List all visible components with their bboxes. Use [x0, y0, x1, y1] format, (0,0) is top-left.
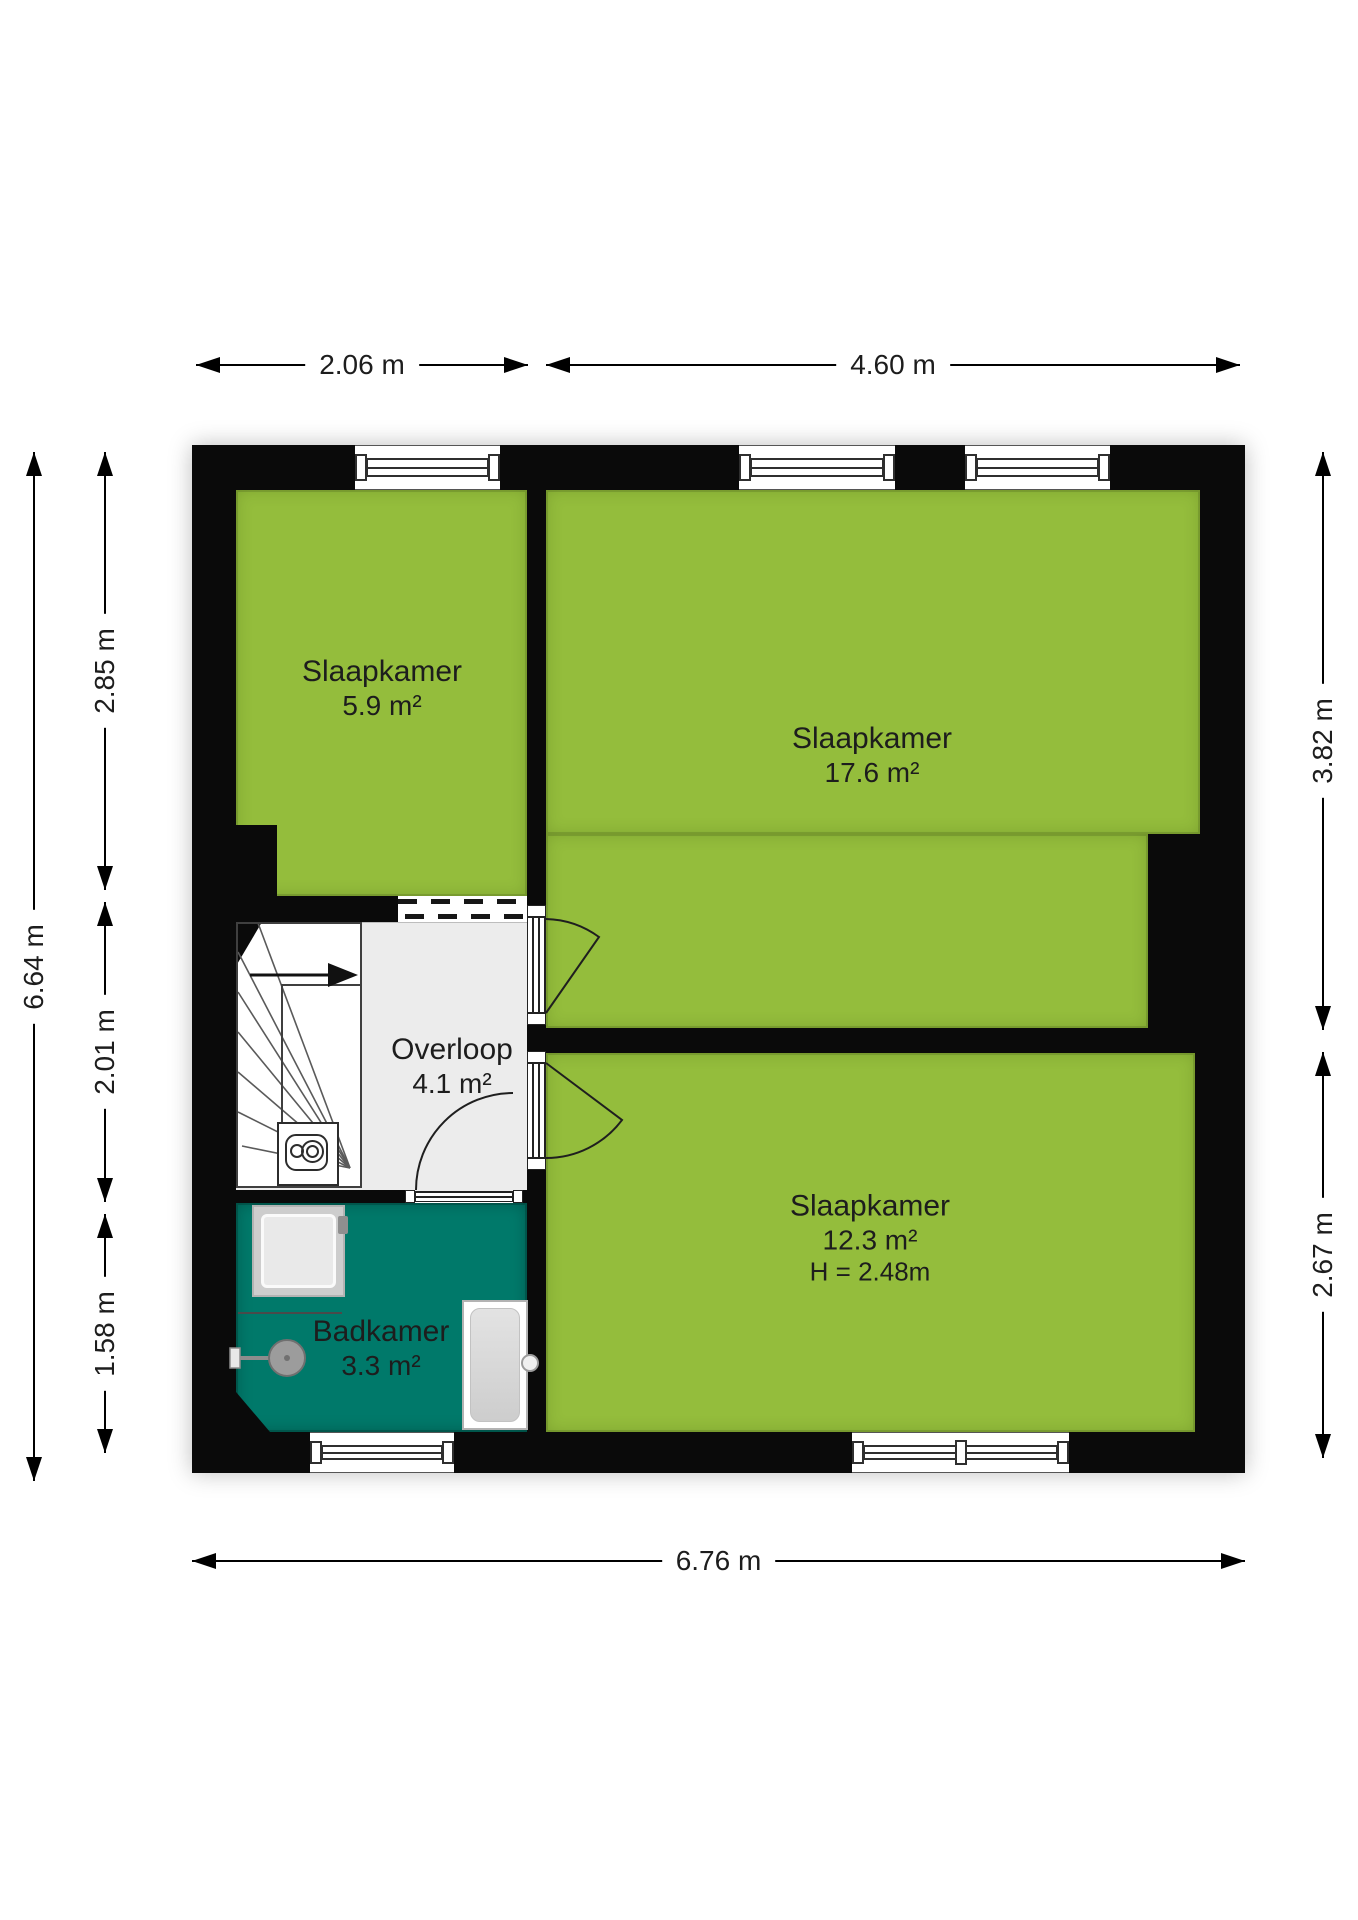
wall-between-17-6-and-12-3 [546, 1028, 1148, 1053]
chimney-block [236, 825, 277, 896]
dim-left-2-01: 2.01 m [104, 902, 106, 1202]
room-label-slaapkamer-5-9: Slaapkamer 5.9 m² [302, 654, 462, 722]
bathtub-icon [462, 1300, 528, 1430]
room-name: Badkamer [313, 1314, 450, 1349]
wall-top-pier [895, 445, 965, 490]
boiler-icon [277, 1122, 339, 1186]
room-label-slaapkamer-12-3: Slaapkamer 12.3 m² H = 2.48m [790, 1188, 950, 1287]
room-label-badkamer: Badkamer 3.3 m² [313, 1314, 450, 1382]
room-floor-slaapkamer-17-6-lower [546, 834, 1148, 1028]
wall-badkamer-north-1 [236, 1190, 405, 1203]
window-mullion [955, 1440, 967, 1465]
window-glass [321, 1445, 443, 1460]
window-bedroom176-top-right [965, 445, 1110, 490]
shower-tray [261, 1214, 336, 1288]
room-name: Slaapkamer [792, 721, 952, 756]
wall-right-middle-thick [1148, 834, 1245, 1053]
door-badkamer [415, 1191, 513, 1202]
door-jamb [527, 1013, 546, 1025]
window-glass [750, 458, 884, 477]
room-area: 3.3 m² [313, 1349, 450, 1382]
room-area: 17.6 m² [792, 756, 952, 789]
shower-tap [338, 1216, 348, 1234]
room-name: Overloop [391, 1032, 513, 1067]
door-jamb [405, 1190, 415, 1203]
door-jamb [527, 1051, 546, 1063]
door-jamb [527, 1158, 546, 1170]
window-bedroom176-top-left [739, 445, 895, 490]
wall-badkamer-north-2 [523, 1190, 546, 1203]
door-jamb [513, 1190, 523, 1203]
wall-bottom-segment-3 [1069, 1432, 1245, 1473]
dim-right-3-82: 3.82 m [1322, 452, 1324, 1030]
window-bedroom123-bottom [852, 1432, 1069, 1473]
room-ceiling-height: H = 2.48m [790, 1257, 950, 1288]
wall-right-lower [1195, 1053, 1245, 1432]
window-glass [976, 458, 1099, 477]
floorplan-canvas: Slaapkamer 5.9 m² Slaapkamer 17.6 m² Sla… [0, 0, 1358, 1920]
door-jamb [527, 905, 546, 917]
dim-bottom-6-76: 6.76 m [192, 1560, 1245, 1562]
room-label-slaapkamer-17-6: Slaapkamer 17.6 m² [792, 721, 952, 789]
door-bedroom176 [527, 917, 546, 1013]
wall-top-segment-1 [192, 445, 355, 490]
room-area: 12.3 m² [790, 1224, 950, 1257]
dim-right-2-67: 2.67 m [1322, 1052, 1324, 1458]
shower-icon [252, 1205, 345, 1297]
room-label-overloop: Overloop 4.1 m² [391, 1032, 513, 1100]
dim-left-outer-6-64: 6.64 m [33, 452, 35, 1481]
window-glass [366, 458, 489, 477]
dim-top-4-60: 4.60 m [546, 364, 1240, 366]
window-bedroom59-top [355, 445, 500, 490]
boiler-symbol [285, 1134, 328, 1171]
dim-top-2-06: 2.06 m [196, 364, 528, 366]
wall-bottom-segment-2 [454, 1432, 852, 1473]
dim-left-2-85: 2.85 m [104, 452, 106, 890]
wall-bottom-segment-1 [192, 1432, 310, 1473]
bathtub-basin [470, 1308, 520, 1422]
room-name: Slaapkamer [302, 654, 462, 689]
wall-left [192, 445, 236, 1473]
wall-bedroom59-south [236, 896, 398, 922]
window-badkamer-bottom [310, 1432, 454, 1473]
room-area: 4.1 m² [391, 1067, 513, 1100]
dim-left-1-58: 1.58 m [104, 1214, 106, 1453]
wall-right-upper [1200, 490, 1245, 834]
door-bedroom123 [527, 1063, 546, 1158]
wall-divider-bedrooms [527, 490, 546, 905]
open-connection-dashed [398, 896, 527, 922]
room-area: 5.9 m² [302, 689, 462, 722]
wall-top-segment-2 [500, 445, 739, 490]
wall-badkamer-east [527, 1203, 546, 1432]
room-name: Slaapkamer [790, 1188, 950, 1223]
wall-top-segment-3 [1110, 445, 1245, 490]
wall-divider-junction [527, 1025, 546, 1051]
